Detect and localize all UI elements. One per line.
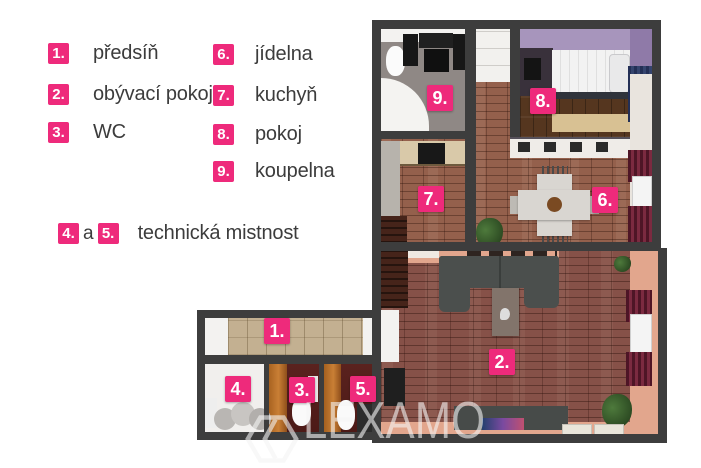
dining-table-centerpiece bbox=[547, 197, 562, 212]
legend-badge-7: 7. bbox=[213, 85, 234, 106]
wall-living-top bbox=[372, 242, 661, 251]
legend-item-jidelna: 6. jídelna bbox=[213, 43, 313, 66]
sideboard-items bbox=[518, 142, 618, 152]
legend-badge-9: 9. bbox=[213, 161, 234, 182]
bedroom-purple-wall bbox=[520, 29, 630, 50]
bathroom-vanity bbox=[419, 33, 453, 48]
lexamo-watermark-text: LEXAMO bbox=[303, 391, 485, 451]
sofa-left-arm bbox=[439, 256, 470, 312]
marker-room-2: 2. bbox=[489, 349, 515, 375]
floor-plan-infographic: 1. předsíň 2. obývací pokoj 3. WC 6. jíd… bbox=[0, 0, 701, 468]
marker-room-4: 4. bbox=[225, 376, 251, 402]
coffee-table-item bbox=[500, 308, 510, 320]
lexamo-logo-icon bbox=[243, 413, 301, 465]
legend-label-pokoj: pokoj bbox=[255, 123, 302, 146]
legend-label-obyvaci-pokoj: obývací pokoj bbox=[93, 83, 213, 106]
legend-label-technicka-mistnost: technická mistnost bbox=[138, 222, 299, 245]
wall-right-bottom bbox=[658, 248, 667, 443]
legend-badge-5: 5. bbox=[98, 223, 119, 244]
wall-hall-left bbox=[465, 20, 476, 248]
marker-room-6: 6. bbox=[592, 187, 618, 213]
room-predsin-floor bbox=[228, 318, 363, 355]
legend-item-wc: 3. WC bbox=[48, 121, 126, 144]
wall-bathroom-bottom bbox=[372, 131, 476, 139]
legend-item-technicka-mistnost: 4. a 5. technická mistnost bbox=[58, 222, 299, 245]
legend-label-kuchyn: kuchyň bbox=[255, 84, 317, 107]
wall-right-top bbox=[652, 20, 661, 251]
marker-room-1: 1. bbox=[264, 318, 290, 344]
legend-item-koupelna: 9. koupelna bbox=[213, 160, 335, 183]
living-curtain-bottom bbox=[626, 352, 652, 386]
wall-annex-left bbox=[197, 310, 205, 440]
marker-room-8: 8. bbox=[530, 88, 556, 114]
legend-badge-1: 1. bbox=[48, 43, 69, 64]
legend-label-wc: WC bbox=[93, 121, 126, 144]
dining-curtain-bottom bbox=[628, 206, 652, 246]
wall-annex-mid bbox=[205, 355, 375, 364]
kitchen-side-counter bbox=[381, 141, 400, 217]
bathroom-sink-unit bbox=[424, 49, 449, 72]
legend-item-kuchyn: 7. kuchyň bbox=[213, 84, 317, 107]
legend-badge-4: 4. bbox=[58, 223, 79, 244]
legend-label-jidelna: jídelna bbox=[255, 43, 313, 66]
bedroom-rug bbox=[552, 114, 632, 132]
legend-item-pokoj: 8. pokoj bbox=[213, 123, 302, 146]
legend-item-obyvaci-pokoj: 2. obývací pokoj bbox=[48, 83, 213, 106]
hall-wardrobe bbox=[476, 29, 510, 82]
bed-pillow bbox=[609, 54, 630, 93]
legend-badge-3: 3. bbox=[48, 122, 69, 143]
wall-annex-top bbox=[197, 310, 381, 318]
legend-conjunction: a bbox=[83, 223, 94, 245]
sofa-right-arm bbox=[524, 256, 559, 308]
marker-room-7: 7. bbox=[418, 186, 444, 212]
living-stairs bbox=[381, 251, 408, 308]
bathroom-cabinet bbox=[403, 34, 418, 66]
legend-badge-2: 2. bbox=[48, 84, 69, 105]
wall-bedroom-left bbox=[510, 29, 520, 137]
living-door-opening bbox=[381, 310, 399, 362]
legend-label-predsin: předsíň bbox=[93, 42, 158, 65]
kitchen-stove bbox=[418, 143, 445, 164]
wall-top bbox=[372, 20, 661, 29]
bathroom-shelf bbox=[453, 34, 465, 70]
bed-frame bbox=[552, 92, 632, 99]
legend-label-koupelna: koupelna bbox=[255, 160, 335, 183]
bedroom-chair bbox=[524, 58, 541, 80]
legend-item-predsin: 1. předsíň bbox=[48, 42, 158, 65]
marker-room-9: 9. bbox=[427, 85, 453, 111]
tv-screen bbox=[482, 418, 524, 430]
legend-badge-8: 8. bbox=[213, 124, 234, 145]
legend-badge-6: 6. bbox=[213, 44, 234, 65]
